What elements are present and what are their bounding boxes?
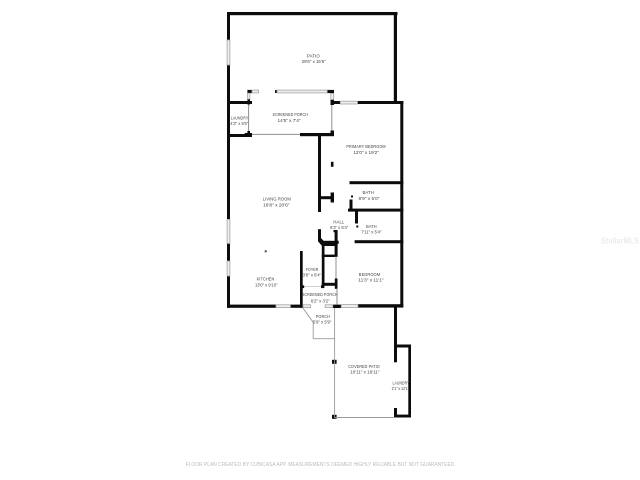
svg-text:11'3" x 11'1": 11'3" x 11'1"	[358, 278, 384, 283]
svg-text:BEDROOM: BEDROOM	[359, 272, 380, 277]
svg-text:5'9" x 5'9": 5'9" x 5'9"	[313, 319, 332, 324]
svg-text:SCREENED PORCH: SCREENED PORCH	[272, 112, 308, 117]
svg-text:8'9" x 5'0": 8'9" x 5'0"	[359, 196, 380, 201]
svg-text:StellarMLS: StellarMLS	[601, 236, 639, 246]
svg-text:10'11" x 19'11": 10'11" x 19'11"	[350, 370, 380, 375]
svg-text:COVERED PATIO: COVERED PATIO	[348, 364, 380, 369]
svg-text:2'1" x 12'1": 2'1" x 12'1"	[392, 386, 410, 391]
svg-text:13'0" x 9'10": 13'0" x 9'10"	[255, 282, 278, 287]
svg-text:4'3" x 5'6": 4'3" x 5'6"	[230, 121, 248, 126]
svg-text:PATIO: PATIO	[307, 53, 320, 58]
svg-text:LAUNDRY: LAUNDRY	[393, 380, 410, 385]
svg-text:14'5" x 7'4": 14'5" x 7'4"	[278, 118, 301, 123]
svg-text:3'8" x 6'4": 3'8" x 6'4"	[303, 272, 322, 277]
svg-text:PRIMARY BEDROOM: PRIMARY BEDROOM	[346, 144, 385, 149]
svg-text:FOYER: FOYER	[306, 267, 319, 272]
svg-text:SCREENED PORCH: SCREENED PORCH	[302, 292, 338, 297]
svg-text:HALL: HALL	[333, 220, 344, 225]
svg-text:PORCH: PORCH	[316, 314, 330, 319]
svg-text:KITCHEN: KITCHEN	[257, 277, 275, 282]
svg-text:29'6" x 15'5": 29'6" x 15'5"	[302, 59, 326, 64]
svg-text:LAUNDRY: LAUNDRY	[231, 116, 249, 121]
svg-text:12'0" x 19'2": 12'0" x 19'2"	[353, 150, 379, 155]
svg-text:16'8" x 20'6": 16'8" x 20'6"	[263, 202, 290, 207]
svg-text:LIVING ROOM: LIVING ROOM	[263, 197, 291, 202]
svg-text:BATH: BATH	[362, 190, 374, 195]
svg-text:7'11" x 5'4": 7'11" x 5'4"	[361, 229, 382, 234]
svg-text:FLOOR PLAN CREATED BY CUBICASA: FLOOR PLAN CREATED BY CUBICASA APP. MEAS…	[186, 462, 456, 468]
svg-text:6'3" x 5'4": 6'3" x 5'4"	[330, 225, 348, 230]
svg-text:6'2" x 3'2": 6'2" x 3'2"	[311, 298, 330, 303]
